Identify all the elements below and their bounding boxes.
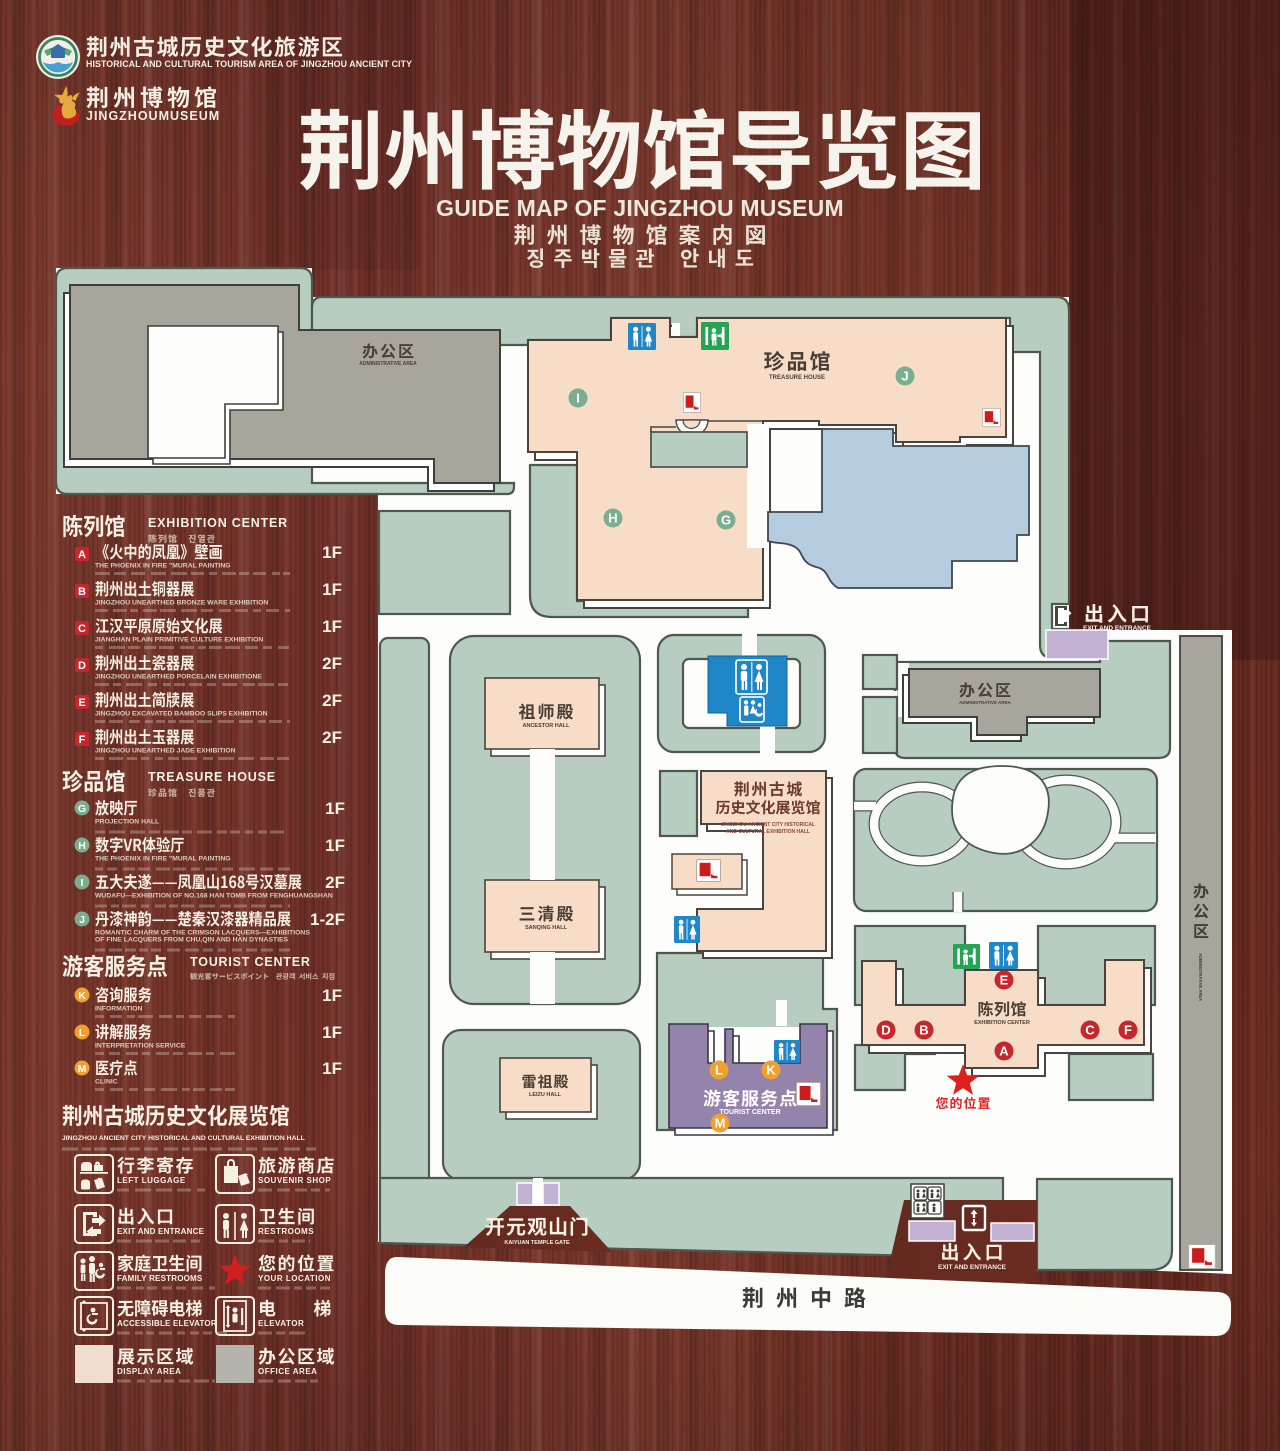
svg-text:GUIDE MAP OF JINGZHOU MUSEUM: GUIDE MAP OF JINGZHOU MUSEUM [436,195,844,221]
svg-text:J: J [901,369,908,384]
svg-text:D: D [78,660,86,672]
svg-text:LEFT LUGGAGE: LEFT LUGGAGE [117,1176,186,1185]
svg-text:KAIYUAN TEMPLE GATE: KAIYUAN TEMPLE GATE [504,1240,570,1246]
svg-text:E: E [78,697,85,709]
svg-text:1F: 1F [322,543,342,562]
svg-text:JINGZHOU UNEARTHED JADE EXHIBI: JINGZHOU UNEARTHED JADE EXHIBITION [95,748,236,755]
svg-text:OFFICE AREA: OFFICE AREA [258,1367,317,1376]
svg-text:EXIT AND ENTRANCE: EXIT AND ENTRANCE [938,1264,1007,1271]
svg-text:1F: 1F [322,1023,342,1042]
svg-text:K: K [766,1063,776,1078]
svg-text:M: M [715,1116,726,1131]
svg-text:RESTROOMS: RESTROOMS [258,1227,314,1236]
svg-text:JINGZHOU UNEARTHED PORCELAIN E: JINGZHOU UNEARTHED PORCELAIN EXHIBITIONE [95,674,262,681]
svg-text:F: F [1124,1023,1132,1038]
svg-text:JINGZHOU ANCIENT CITY HISTORIC: JINGZHOU ANCIENT CITY HISTORICAL AND CUL… [62,1135,305,1142]
svg-text:SOUVENIR SHOP: SOUVENIR SHOP [258,1176,331,1185]
svg-text:J: J [79,914,85,926]
svg-text:2F: 2F [325,873,345,892]
svg-text:DISPLAY AREA: DISPLAY AREA [117,1367,181,1376]
svg-text:TREASURE HOUSE: TREASURE HOUSE [769,375,825,381]
svg-text:1F: 1F [322,986,342,1005]
svg-text:ELEVATOR: ELEVATOR [258,1319,304,1328]
svg-text:2F: 2F [322,691,342,710]
svg-text:WUDAFU—EXHIBITION OF NO.168 HA: WUDAFU—EXHIBITION OF NO.168 HAN TOMB FRO… [95,893,333,900]
svg-text:ADMINISTRATIVE AREA: ADMINISTRATIVE AREA [959,700,1012,705]
svg-text:SANQING HALL: SANQING HALL [525,925,568,931]
svg-text:THE PHOENIX IN FIRE "MURAL PAI: THE PHOENIX IN FIRE "MURAL PAINTING [95,563,231,570]
svg-text:JINGZHOUMUSEUM: JINGZHOUMUSEUM [86,109,220,123]
svg-text:L: L [715,1063,723,1078]
svg-text:1F: 1F [322,1059,342,1078]
svg-text:YOUR LOCATION: YOUR LOCATION [258,1274,331,1283]
svg-text:PROJECTION HALL: PROJECTION HALL [95,819,159,826]
svg-text:EXIT AND ENTRANCE: EXIT AND ENTRANCE [117,1227,205,1236]
svg-text:B: B [78,586,86,598]
svg-text:K: K [78,990,86,1002]
svg-text:H: H [78,840,86,852]
svg-text:TREASURE HOUSE: TREASURE HOUSE [148,770,276,784]
svg-text:I: I [576,391,580,406]
svg-text:L: L [79,1027,86,1039]
svg-text:1F: 1F [325,799,345,818]
svg-text:THE PHOENIX IN FIRE "MURAL PAI: THE PHOENIX IN FIRE "MURAL PAINTING [95,856,231,863]
svg-text:ROMANTIC CHARM OF THE CRIMSON: ROMANTIC CHARM OF THE CRIMSON LACQUERS—E… [95,930,310,937]
svg-text:TOURIST CENTER: TOURIST CENTER [719,1109,780,1116]
svg-text:JINGZHOU EXCAVATED BAMBOO SLIP: JINGZHOU EXCAVATED BAMBOO SLIPS EXHIBITI… [95,711,268,718]
svg-text:C: C [1085,1023,1095,1038]
svg-text:JINGZHOU ANCIENT CITY HISTORIC: JINGZHOU ANCIENT CITY HISTORICAL [721,822,815,828]
svg-text:TOURIST CENTER: TOURIST CENTER [190,955,311,969]
svg-text:EXIT AND ENTRANCE: EXIT AND ENTRANCE [1083,625,1152,632]
svg-text:1F: 1F [325,836,345,855]
svg-text:D: D [881,1023,890,1038]
svg-text:LEIZU HALL: LEIZU HALL [529,1092,562,1098]
svg-text:F: F [79,734,86,746]
svg-text:A: A [999,1044,1009,1059]
svg-text:HISTORICAL AND CULTURAL TOURIS: HISTORICAL AND CULTURAL TOURISM AREA OF … [86,59,412,69]
svg-text:2F: 2F [322,728,342,747]
svg-text:A: A [78,549,86,561]
svg-text:2F: 2F [322,654,342,673]
svg-text:AND CULTURAL EXHIBITION HALL: AND CULTURAL EXHIBITION HALL [726,829,810,835]
svg-text:ACCESSIBLE ELEVATOR: ACCESSIBLE ELEVATOR [117,1319,217,1328]
svg-text:INTERPRETATION SERVICE: INTERPRETATION SERVICE [95,1043,186,1050]
svg-text:CLINIC: CLINIC [95,1079,118,1086]
svg-text:EXHIBITION CENTER: EXHIBITION CENTER [974,1020,1030,1026]
svg-text:H: H [608,511,617,526]
svg-text:G: G [721,513,731,528]
svg-text:C: C [78,623,86,635]
svg-text:ANCESTOR HALL: ANCESTOR HALL [523,723,571,729]
svg-text:FAMILY RESTROOMS: FAMILY RESTROOMS [117,1274,203,1283]
svg-text:OF FINE LACQUERS FROM CHU,QIN: OF FINE LACQUERS FROM CHU,QIN AND HAN DY… [95,937,289,944]
svg-text:EXHIBITION CENTER: EXHIBITION CENTER [148,516,288,530]
svg-text:JINGZHOU UNEARTHED BRONZE WARE: JINGZHOU UNEARTHED BRONZE WARE EXHIBITIO… [95,600,268,607]
svg-text:JIANGHAN PLAIN PRIMITIVE CULTU: JIANGHAN PLAIN PRIMITIVE CULTURE EXHIBIT… [95,637,263,644]
svg-text:G: G [78,803,86,815]
svg-text:ADMINISTRATIVE AREA: ADMINISTRATIVE AREA [1198,953,1203,1001]
svg-text:M: M [78,1063,87,1075]
svg-text:E: E [1000,973,1009,988]
svg-text:1F: 1F [322,580,342,599]
svg-text:ADMINISTRATIVE AREA: ADMINISTRATIVE AREA [359,361,417,367]
svg-text:1-2F: 1-2F [310,910,345,929]
svg-text:B: B [919,1023,928,1038]
svg-text:INFORMATION: INFORMATION [95,1006,143,1013]
svg-text:I: I [81,877,84,889]
svg-text:1F: 1F [322,617,342,636]
